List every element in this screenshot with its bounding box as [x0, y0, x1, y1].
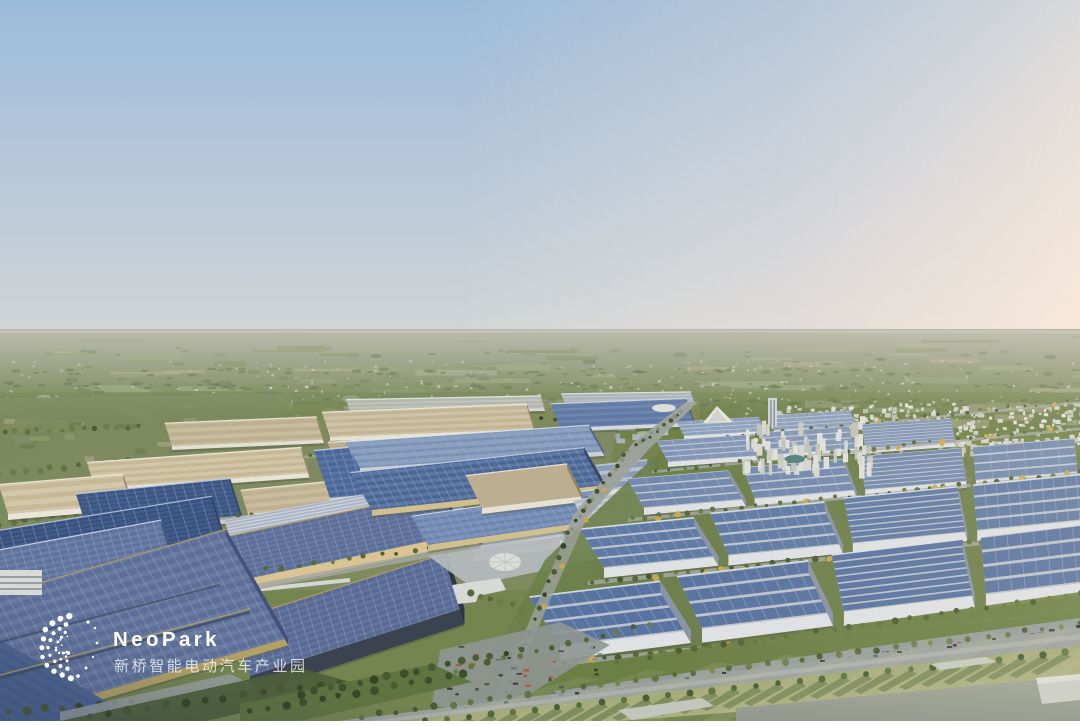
svg-text:新桥智能电动汽车产业园: 新桥智能电动汽车产业园 [114, 657, 308, 675]
svg-text:NeoPark: NeoPark [113, 628, 220, 651]
